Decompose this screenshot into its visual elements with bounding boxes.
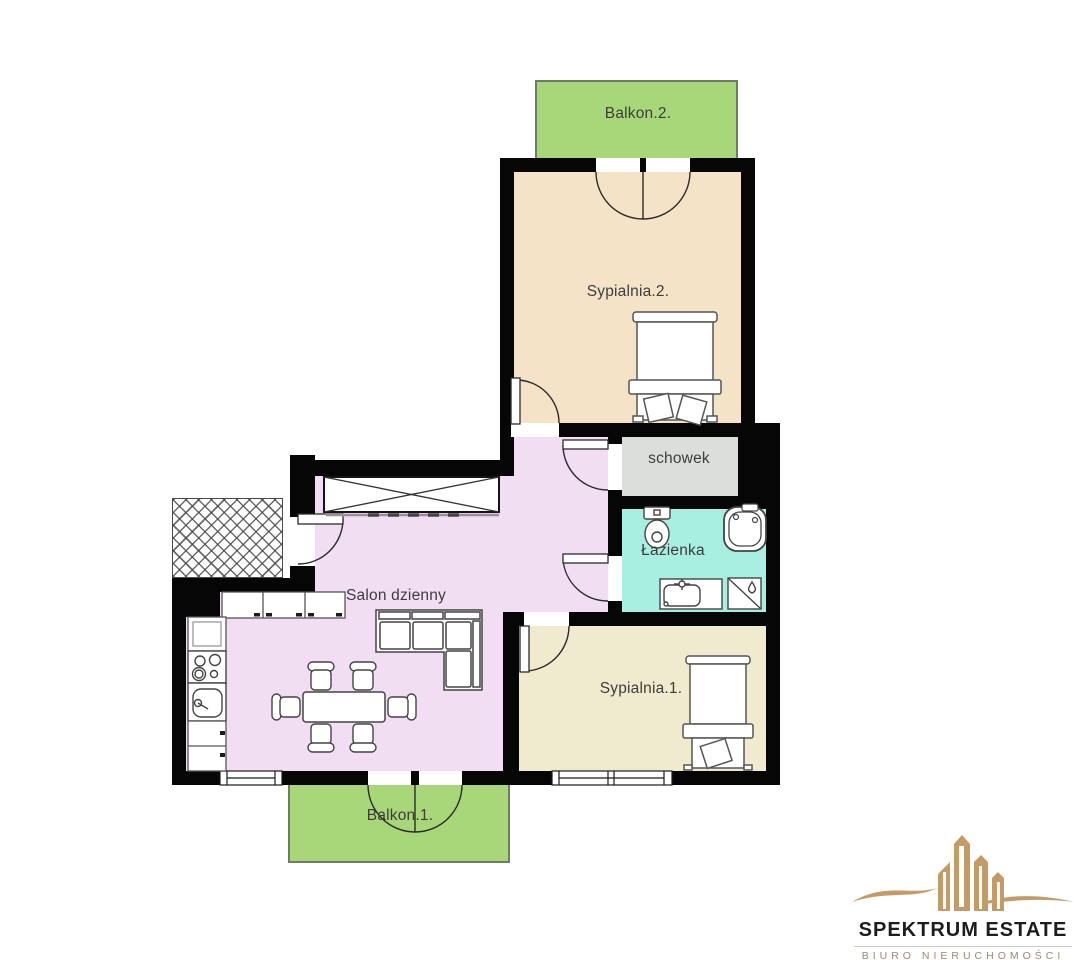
floor-plan: Balkon.2. Sypialnia.2. schowek Łazienka … <box>0 0 1074 960</box>
agency-logo-title: SPEKTRUM ESTATE <box>846 919 1074 942</box>
balcony2-door-opening <box>596 158 640 172</box>
wall <box>172 578 220 617</box>
balcony2-door-opening <box>646 158 690 172</box>
wall <box>608 496 780 509</box>
stairwell-hatch <box>172 498 283 578</box>
balcony1-door-opening <box>419 771 462 785</box>
agency-logo-skyline-icon <box>846 816 1074 916</box>
entrance-door-opening <box>290 517 315 566</box>
room-label-lazienka: Łazienka <box>641 542 705 560</box>
balcony1-door-opening <box>368 771 411 785</box>
wall <box>296 460 514 476</box>
agency-logo-subtitle: BIURO NIERUCHOMOŚCI <box>846 950 1074 960</box>
wall <box>766 423 780 785</box>
room-label-sypialnia-1: Sypialnia.1. <box>600 680 683 698</box>
room-label-balkon-2: Balkon.2. <box>605 105 671 123</box>
lazienka-door-opening <box>608 556 622 601</box>
wall <box>220 578 315 592</box>
room-label-schowek: schowek <box>648 450 710 468</box>
room-salon-dzienny <box>186 592 505 771</box>
sypialnia1-door-opening <box>524 612 569 626</box>
wall <box>172 771 780 785</box>
schowek-door-opening <box>608 444 622 490</box>
room-sypialnia-1 <box>519 626 766 771</box>
wall <box>741 172 755 423</box>
agency-logo: SPEKTRUM ESTATE BIURO NIERUCHOMOŚCI <box>846 816 1074 960</box>
room-label-salon-dzienny: Salon dzienny <box>346 587 446 605</box>
wall <box>503 626 519 785</box>
room-lazienka <box>622 509 766 612</box>
sypialnia2-door-opening <box>511 423 559 437</box>
room-label-balkon-1: Balkon.1. <box>367 807 433 825</box>
agency-logo-divider <box>854 946 1072 947</box>
room-label-sypialnia-2: Sypialnia.2. <box>587 283 670 301</box>
